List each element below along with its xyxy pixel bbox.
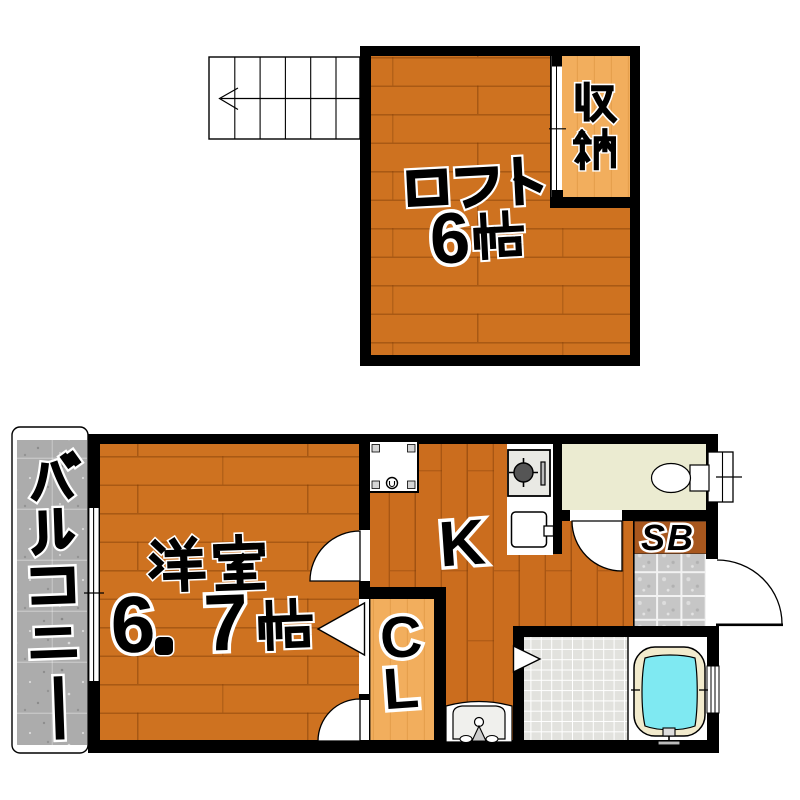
- svg-text:SB: SB: [641, 517, 695, 558]
- svg-text:6: 6: [428, 198, 472, 280]
- svg-text:L: L: [381, 655, 421, 722]
- svg-text:7: 7: [202, 577, 250, 667]
- svg-text:6: 6: [109, 579, 157, 669]
- svg-text:K: K: [437, 505, 488, 580]
